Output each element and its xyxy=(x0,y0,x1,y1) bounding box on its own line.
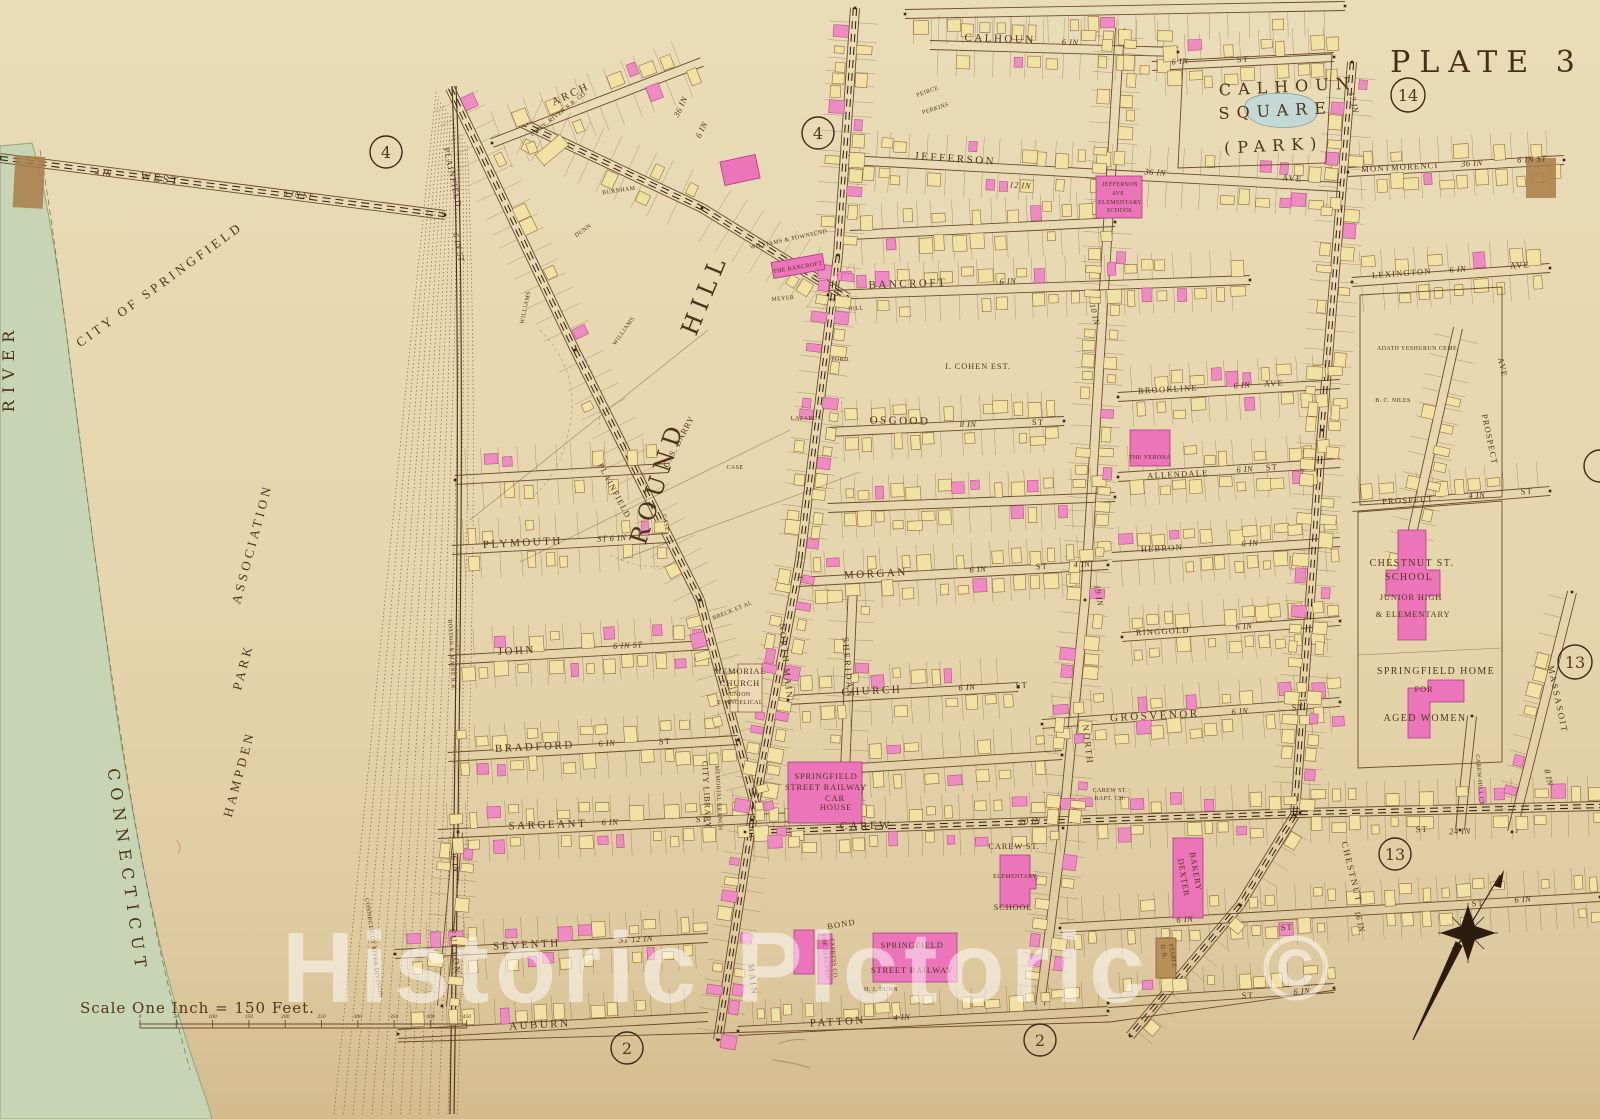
building xyxy=(1092,163,1107,174)
building xyxy=(978,269,993,282)
car-house-line1: SPRINGFIELD xyxy=(794,771,857,781)
building xyxy=(1239,189,1250,205)
building xyxy=(504,482,514,498)
building xyxy=(563,762,576,773)
building xyxy=(679,720,689,730)
building xyxy=(1254,451,1266,460)
building-pink xyxy=(1309,713,1318,724)
building xyxy=(1327,678,1341,689)
building xyxy=(1249,897,1258,908)
building xyxy=(862,438,872,452)
building xyxy=(992,551,1004,564)
building xyxy=(622,654,634,667)
building xyxy=(1098,825,1108,839)
building xyxy=(873,771,885,787)
building xyxy=(1046,795,1061,809)
type-montmorenci: 6 IN ST xyxy=(1517,153,1548,165)
building xyxy=(956,56,970,69)
building xyxy=(1073,702,1084,714)
circled-2-auburn: 2 xyxy=(622,1039,632,1058)
building xyxy=(581,633,594,649)
building xyxy=(845,437,859,450)
building xyxy=(1239,691,1253,705)
building xyxy=(1237,482,1246,491)
building xyxy=(1218,822,1229,833)
building xyxy=(1269,796,1281,810)
type-church: ST xyxy=(1015,680,1028,691)
building xyxy=(1107,375,1115,383)
building xyxy=(586,664,594,674)
lazarus-label: LAZARUS xyxy=(791,416,821,422)
building xyxy=(1172,480,1186,490)
type-plymouth: ST 6 IN xyxy=(597,532,628,544)
building xyxy=(956,556,964,569)
building xyxy=(1146,614,1158,625)
building xyxy=(856,45,872,55)
type-park-st: ST xyxy=(1236,54,1249,65)
building xyxy=(1118,127,1133,140)
building xyxy=(1274,523,1289,533)
building xyxy=(1126,74,1136,88)
building xyxy=(1086,265,1102,273)
building xyxy=(838,705,847,719)
building xyxy=(1017,269,1027,278)
gauge-montmorenci: 36 IN xyxy=(1460,157,1484,168)
type-jefferson: AVE xyxy=(1282,172,1303,183)
building xyxy=(1022,150,1037,164)
building xyxy=(1104,357,1117,369)
building-pink xyxy=(477,763,489,774)
building xyxy=(821,216,835,227)
building-pink xyxy=(1058,505,1067,518)
building xyxy=(922,511,936,521)
building xyxy=(1338,287,1349,295)
building xyxy=(1082,340,1095,351)
building xyxy=(1266,714,1275,729)
building xyxy=(1222,719,1233,732)
building xyxy=(1011,548,1021,563)
jefferson-school-line3: ELEMENTARY xyxy=(1098,200,1142,206)
building xyxy=(1402,913,1414,927)
memorial-church-line4: EVANGELICAL xyxy=(717,700,763,706)
building-pink xyxy=(1130,799,1144,810)
building xyxy=(468,528,476,544)
building xyxy=(1589,877,1597,892)
carew-school-line3: SCHOOL xyxy=(994,902,1033,912)
building xyxy=(1594,813,1600,823)
building-pink xyxy=(497,764,505,776)
building-pink xyxy=(1188,39,1202,50)
building xyxy=(1541,879,1549,888)
building xyxy=(583,753,597,769)
gauge-sargeant: 6 IN xyxy=(601,817,619,828)
building-pink xyxy=(1237,826,1247,835)
building xyxy=(1276,364,1291,375)
building xyxy=(835,62,845,72)
building xyxy=(1172,978,1187,992)
building xyxy=(833,329,845,341)
building-pink xyxy=(887,745,901,754)
building xyxy=(863,166,875,180)
memorial-church-line1: MEMORIAL xyxy=(714,666,767,676)
building xyxy=(1134,650,1143,660)
building xyxy=(1200,529,1213,543)
gauge2-morgan: 4 IN xyxy=(1073,559,1091,570)
building xyxy=(1142,259,1154,270)
watermark-text: Historic Pictoric xyxy=(282,912,1151,1024)
building xyxy=(966,695,978,710)
building xyxy=(1533,667,1548,682)
building xyxy=(755,802,763,810)
building xyxy=(660,721,672,731)
building xyxy=(1167,70,1182,86)
building xyxy=(1191,397,1206,410)
verona-label: THE VERONA xyxy=(1129,455,1171,461)
building-pink xyxy=(1061,665,1073,678)
building-pink xyxy=(944,669,952,683)
scale-tick: 50 xyxy=(174,1014,180,1020)
scale-tick: 0 xyxy=(139,1014,142,1020)
gauge-park-st: 6 IN xyxy=(1171,56,1189,67)
building-pink xyxy=(729,857,739,865)
building xyxy=(1454,284,1463,295)
building xyxy=(830,85,841,98)
building xyxy=(976,769,990,781)
building xyxy=(1292,553,1309,567)
building xyxy=(1360,484,1372,500)
building-pink xyxy=(969,141,978,151)
building xyxy=(975,801,987,811)
building xyxy=(1047,809,1059,825)
building xyxy=(1046,59,1058,70)
building xyxy=(1054,717,1064,732)
building xyxy=(1535,789,1549,798)
building xyxy=(834,46,844,54)
building xyxy=(637,655,647,666)
building xyxy=(665,749,674,761)
building xyxy=(894,433,902,449)
building xyxy=(1308,402,1319,417)
building xyxy=(1137,402,1146,416)
building xyxy=(1307,691,1322,705)
building xyxy=(1361,256,1375,267)
building xyxy=(1079,203,1094,219)
building xyxy=(1242,525,1257,536)
building xyxy=(1574,875,1583,889)
building xyxy=(1219,476,1232,487)
building xyxy=(1042,201,1051,211)
building xyxy=(1289,641,1298,653)
building xyxy=(1061,878,1074,889)
building xyxy=(743,761,758,776)
building xyxy=(1095,547,1104,556)
building xyxy=(1328,421,1340,431)
building xyxy=(1299,474,1313,487)
building xyxy=(1014,402,1023,416)
building xyxy=(1109,330,1118,340)
circled-13-right: 13 xyxy=(1565,653,1585,672)
building xyxy=(1534,816,1546,825)
building-pink xyxy=(1103,467,1112,480)
building xyxy=(470,812,478,828)
building xyxy=(1207,975,1215,984)
river-word: RIVER xyxy=(0,324,18,413)
building xyxy=(1457,787,1468,797)
street-label-john: JOHN xyxy=(497,644,536,658)
building xyxy=(1275,41,1284,56)
gauge-church: 6 IN xyxy=(958,682,976,693)
building xyxy=(670,836,679,847)
building-pink xyxy=(721,890,738,903)
home-line1: SPRINGFIELD HOME xyxy=(1377,666,1495,677)
home-line3: AGED WOMEN xyxy=(1384,713,1467,724)
building xyxy=(1311,789,1326,798)
building xyxy=(1288,525,1303,536)
building-pink xyxy=(616,835,624,848)
building-pink xyxy=(1100,17,1114,28)
building xyxy=(1386,794,1399,806)
building xyxy=(1282,714,1298,725)
building xyxy=(823,447,833,457)
building xyxy=(1321,498,1334,507)
building xyxy=(754,826,769,842)
building xyxy=(1044,478,1054,488)
building xyxy=(1348,788,1356,799)
building-pink xyxy=(841,273,854,282)
building xyxy=(683,828,694,840)
carew-bapt-line2: BAPT. CH. xyxy=(1094,796,1125,802)
building xyxy=(844,513,856,526)
building-pink xyxy=(598,836,609,845)
building xyxy=(858,491,869,500)
building-pink xyxy=(1424,174,1433,185)
building xyxy=(1047,232,1055,241)
building xyxy=(527,551,536,567)
building xyxy=(1123,55,1135,70)
building xyxy=(1084,654,1099,666)
building xyxy=(982,298,991,311)
building xyxy=(1493,816,1508,828)
building xyxy=(927,807,936,816)
building xyxy=(1231,286,1246,296)
building xyxy=(1030,575,1040,589)
building xyxy=(1403,178,1419,191)
building-pink xyxy=(1078,782,1087,791)
building xyxy=(830,361,840,374)
building-pink xyxy=(1473,252,1486,268)
building xyxy=(902,588,914,600)
building-pink xyxy=(1280,198,1292,208)
building xyxy=(1050,831,1059,840)
building xyxy=(1487,478,1500,487)
building xyxy=(1189,479,1202,493)
building xyxy=(922,433,934,445)
building xyxy=(1155,260,1165,271)
building xyxy=(685,804,696,813)
watermark-copyright-icon: © xyxy=(1262,918,1330,1020)
building xyxy=(1275,639,1285,649)
building xyxy=(1011,482,1025,497)
jefferson-school-line1: JEFFERSON xyxy=(1102,182,1138,188)
building xyxy=(1315,641,1324,654)
building xyxy=(813,557,821,571)
building xyxy=(1312,601,1323,613)
building xyxy=(1055,153,1069,169)
building xyxy=(1092,614,1102,629)
building xyxy=(1157,402,1166,413)
building-pink xyxy=(1116,251,1126,263)
building xyxy=(1422,911,1431,927)
building xyxy=(1305,748,1317,761)
building-pink xyxy=(1101,409,1114,418)
building xyxy=(1259,635,1270,648)
building xyxy=(1076,448,1091,458)
building-pink xyxy=(817,457,831,470)
building xyxy=(878,300,890,311)
building xyxy=(980,23,990,33)
building xyxy=(938,479,952,491)
building xyxy=(462,667,476,682)
building xyxy=(819,676,832,688)
building xyxy=(775,729,786,742)
building xyxy=(1037,152,1047,167)
building xyxy=(1062,204,1072,216)
building xyxy=(1427,254,1442,266)
building xyxy=(1239,974,1252,989)
building-pink xyxy=(1059,647,1076,660)
building xyxy=(970,233,985,249)
building xyxy=(903,209,913,222)
building xyxy=(855,73,868,88)
case1-label: CASE xyxy=(727,465,744,471)
building xyxy=(1406,475,1420,490)
building xyxy=(1068,809,1081,823)
building xyxy=(1434,287,1443,298)
building-pink xyxy=(1358,80,1367,90)
building xyxy=(938,510,951,525)
building xyxy=(579,836,594,849)
gauge2-jefferson: 12 IN xyxy=(1009,179,1032,191)
type-lexington: AVE xyxy=(1509,259,1530,270)
building xyxy=(1439,913,1453,926)
building xyxy=(821,706,835,720)
building xyxy=(787,510,799,520)
building xyxy=(911,435,921,450)
building xyxy=(879,168,890,178)
building xyxy=(560,556,568,567)
car-house-line4: HOUSE xyxy=(820,802,852,812)
building xyxy=(788,837,799,848)
building xyxy=(869,744,882,759)
building xyxy=(1297,682,1307,692)
building xyxy=(1035,898,1050,909)
building xyxy=(899,307,910,317)
building xyxy=(994,800,1002,811)
building xyxy=(595,725,608,735)
building xyxy=(1056,179,1065,191)
building-pink xyxy=(829,100,845,114)
building xyxy=(1372,825,1379,834)
building-pink xyxy=(1027,480,1038,492)
building-pink xyxy=(1170,792,1181,804)
building-pink xyxy=(1107,263,1116,276)
building xyxy=(866,806,874,818)
building xyxy=(934,234,945,250)
building xyxy=(802,711,810,722)
building-pink xyxy=(1494,788,1504,800)
building xyxy=(1391,152,1402,162)
building xyxy=(1019,433,1027,443)
building xyxy=(802,842,817,852)
building xyxy=(1517,176,1526,187)
building-pink xyxy=(818,280,830,292)
gauge2-carew: 24 IN xyxy=(1449,826,1472,837)
building xyxy=(876,511,885,522)
building xyxy=(579,802,590,812)
gauge-prospect: 4 IN xyxy=(1468,490,1486,501)
building xyxy=(848,205,858,220)
building xyxy=(932,213,946,222)
building-pink xyxy=(1030,205,1041,220)
gauge-grosvenor: 6 IN xyxy=(1231,706,1249,717)
building-pink xyxy=(1211,368,1222,381)
building xyxy=(1204,76,1212,88)
building xyxy=(1256,198,1270,207)
scale-label: Scale One Inch = 150 Feet. xyxy=(80,999,315,1017)
building xyxy=(1324,168,1338,181)
building-pink xyxy=(999,181,1008,191)
type-john: 6 IN ST xyxy=(613,639,644,651)
building xyxy=(907,521,922,531)
building-pink xyxy=(1177,288,1186,301)
building xyxy=(1084,290,1100,298)
building xyxy=(1140,900,1155,912)
building xyxy=(1084,329,1095,338)
building xyxy=(1157,291,1167,301)
gauge-brookline: 6 IN xyxy=(1233,380,1251,391)
building xyxy=(1474,278,1489,292)
building xyxy=(1070,800,1086,809)
building xyxy=(1265,895,1274,906)
building xyxy=(1440,180,1455,189)
building xyxy=(1094,147,1107,155)
building xyxy=(1242,606,1255,618)
building xyxy=(1328,889,1336,901)
building xyxy=(1101,231,1112,242)
building xyxy=(1494,144,1506,160)
building xyxy=(461,863,474,872)
building xyxy=(1526,682,1543,699)
building xyxy=(1095,502,1110,513)
building-pink xyxy=(1343,223,1357,239)
building xyxy=(1028,507,1037,523)
building xyxy=(468,840,479,850)
building xyxy=(1314,887,1323,896)
building-pink xyxy=(856,275,866,288)
building xyxy=(1161,928,1169,937)
building-pink xyxy=(720,1034,737,1050)
building xyxy=(1250,792,1262,807)
building xyxy=(550,631,559,640)
building xyxy=(849,152,865,168)
building xyxy=(595,802,609,812)
carew-bapt-line1: CAREW ST. xyxy=(1093,788,1128,794)
building xyxy=(1158,31,1173,42)
building xyxy=(1044,573,1060,589)
building xyxy=(461,763,470,776)
building xyxy=(1124,40,1137,49)
building xyxy=(882,138,893,148)
